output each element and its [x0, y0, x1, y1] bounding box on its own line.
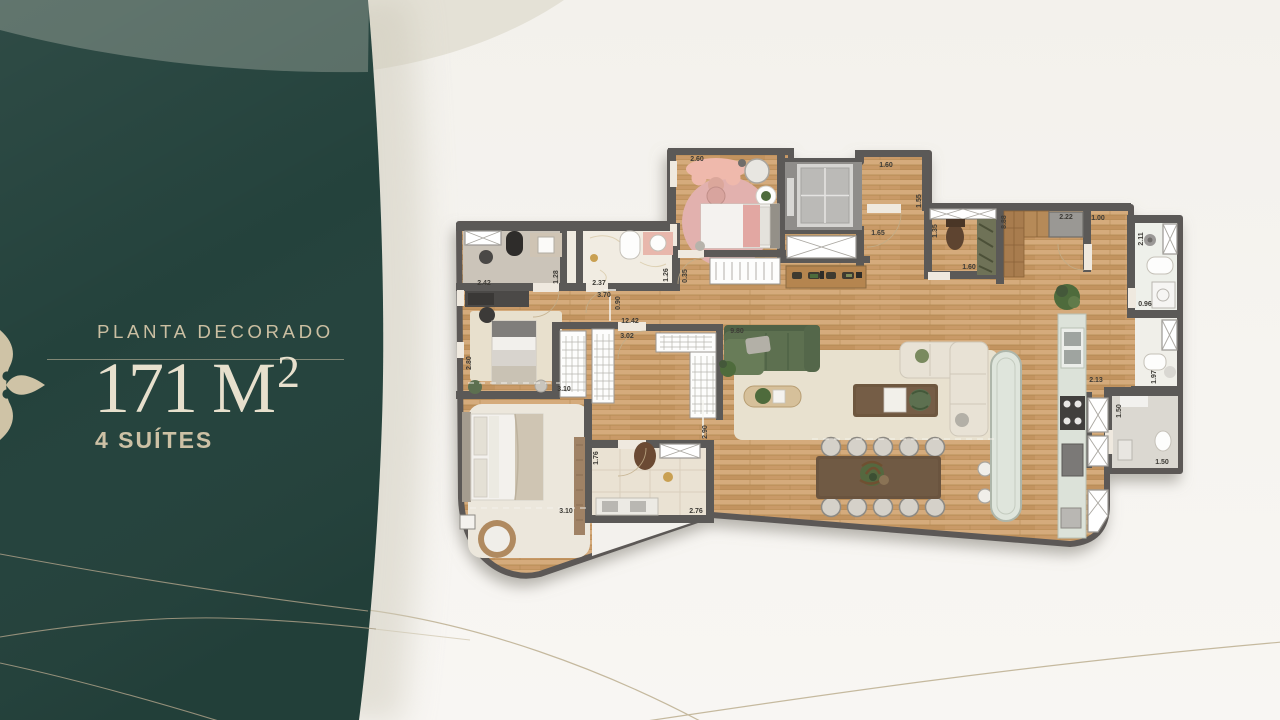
svg-text:1.76: 1.76	[593, 451, 600, 465]
svg-text:8.88: 8.88	[1001, 215, 1008, 229]
svg-text:2.76: 2.76	[689, 508, 703, 515]
svg-text:2.11: 2.11	[1138, 232, 1145, 245]
svg-text:1.28: 1.28	[553, 270, 560, 284]
svg-text:3.10: 3.10	[559, 508, 573, 515]
svg-text:3.70: 3.70	[597, 292, 611, 299]
svg-text:1.97: 1.97	[1151, 370, 1158, 384]
svg-text:1.60: 1.60	[879, 162, 893, 169]
svg-text:1.65: 1.65	[871, 230, 885, 237]
svg-text:1.50: 1.50	[1155, 459, 1169, 466]
svg-text:1.55: 1.55	[916, 194, 923, 208]
svg-text:1.26: 1.26	[663, 268, 670, 282]
svg-text:3.02: 3.02	[620, 333, 634, 340]
svg-text:2.37: 2.37	[592, 280, 606, 287]
svg-text:9.80: 9.80	[730, 328, 744, 335]
svg-text:1.50: 1.50	[1116, 404, 1123, 418]
svg-text:2.22: 2.22	[1059, 214, 1073, 221]
svg-text:1.60: 1.60	[962, 264, 976, 271]
svg-text:2.13: 2.13	[1089, 377, 1103, 384]
svg-text:2.80: 2.80	[466, 356, 473, 370]
svg-text:12.42: 12.42	[621, 318, 639, 325]
svg-text:0.96: 0.96	[1138, 301, 1152, 308]
svg-text:3.10: 3.10	[557, 386, 571, 393]
svg-text:0.90: 0.90	[615, 296, 622, 310]
svg-text:1.35: 1.35	[932, 224, 939, 238]
svg-text:0.35: 0.35	[682, 269, 689, 283]
svg-text:2.90: 2.90	[702, 425, 709, 439]
svg-text:2.42: 2.42	[477, 280, 491, 287]
svg-text:2.60: 2.60	[690, 156, 704, 163]
svg-text:1.00: 1.00	[1091, 215, 1105, 222]
